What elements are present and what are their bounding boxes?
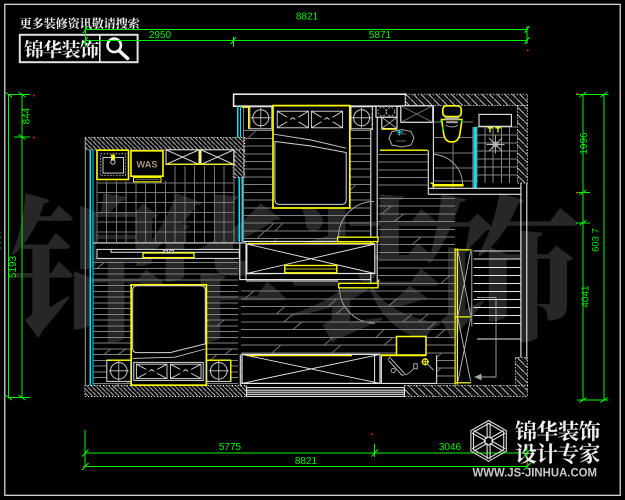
svg-text:6037: 6037 [0, 228, 4, 251]
svg-text:8821: 8821 [296, 12, 319, 23]
svg-text:WWW.JS-JINHUA.COM: WWW.JS-JINHUA.COM [473, 467, 598, 480]
svg-text:WAS: WAS [137, 160, 158, 170]
svg-text:4041: 4041 [581, 285, 592, 308]
svg-text:2950: 2950 [149, 30, 172, 41]
svg-text:5775: 5775 [219, 442, 242, 453]
svg-text:603 7: 603 7 [591, 228, 602, 252]
svg-text:1996: 1996 [579, 132, 590, 155]
svg-text:5193: 5193 [8, 255, 19, 278]
svg-text:5871: 5871 [369, 30, 392, 41]
svg-text:844: 844 [22, 107, 33, 124]
svg-text:8821: 8821 [295, 456, 318, 467]
svg-text:3046: 3046 [439, 442, 462, 453]
